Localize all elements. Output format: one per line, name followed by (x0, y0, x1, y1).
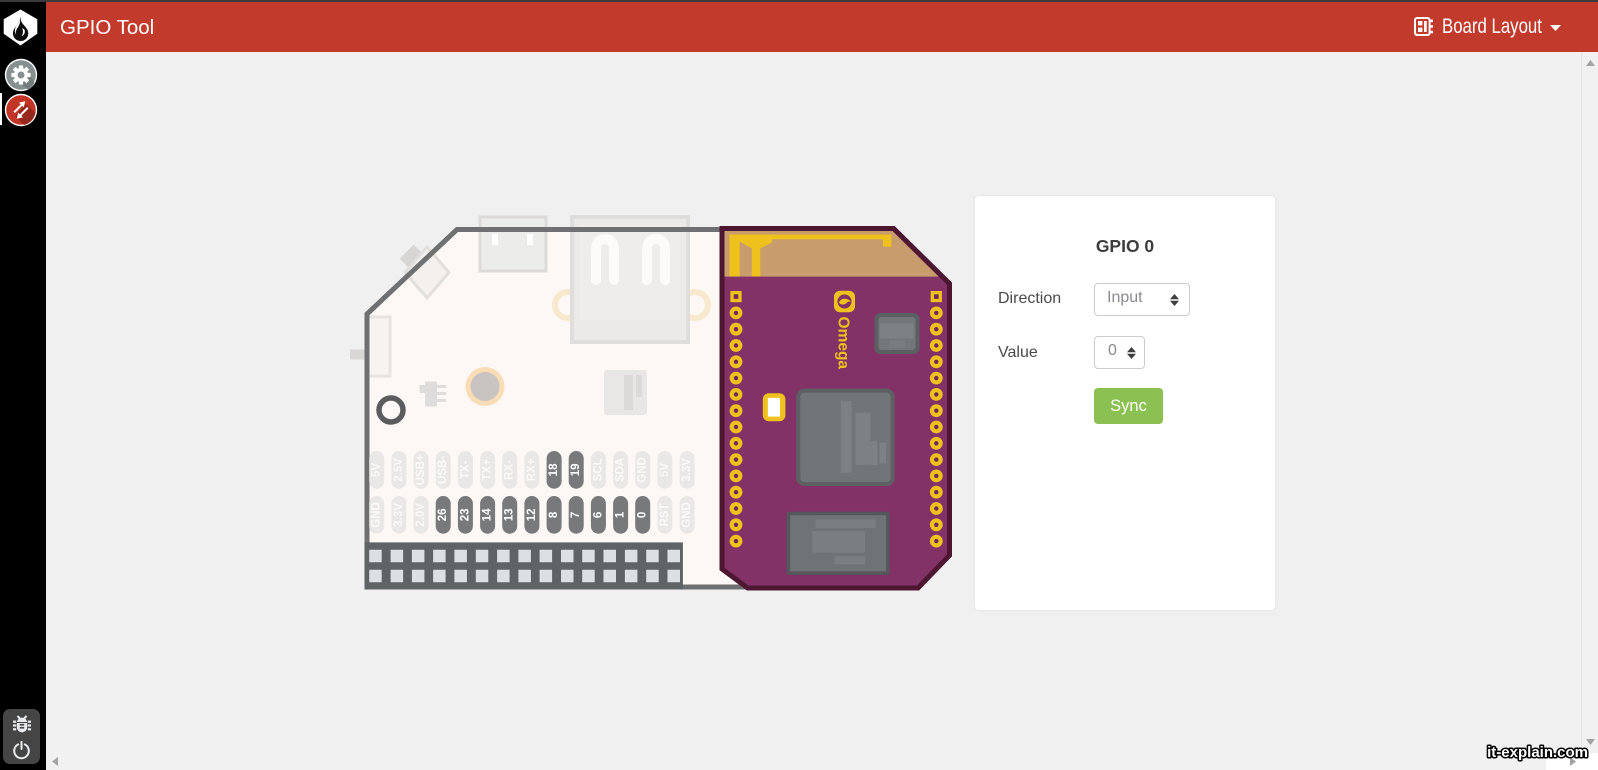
svg-text:5V: 5V (371, 463, 383, 477)
svg-text:3.3V: 3.3V (681, 458, 693, 482)
svg-text:3.3V: 3.3V (393, 503, 405, 527)
svg-text:12: 12 (526, 509, 538, 522)
svg-text:5V: 5V (659, 463, 671, 477)
svg-text:RST: RST (659, 503, 671, 526)
svg-text:19: 19 (570, 464, 582, 477)
svg-text:it-explain.com: it-explain.com (1487, 744, 1588, 761)
svg-text:TX+: TX+ (482, 459, 494, 481)
svg-text:6: 6 (592, 512, 604, 518)
svg-text:0: 0 (637, 512, 649, 518)
svg-text:GND: GND (371, 502, 383, 528)
svg-text:RX-: RX- (504, 460, 516, 480)
svg-text:RX+: RX+ (526, 458, 538, 481)
svg-text:2.0V: 2.0V (415, 503, 427, 527)
svg-text:2.5V: 2.5V (393, 458, 405, 482)
svg-text:26: 26 (437, 509, 449, 522)
svg-text:SCL: SCL (592, 458, 604, 481)
svg-text:1: 1 (615, 511, 627, 518)
svg-text:USB+: USB+ (415, 454, 427, 485)
svg-text:18: 18 (548, 463, 560, 476)
svg-text:14: 14 (482, 508, 494, 521)
svg-text:7: 7 (570, 512, 582, 518)
svg-text:GND: GND (681, 502, 693, 528)
svg-text:GND: GND (637, 457, 649, 483)
svg-text:USB-: USB- (437, 456, 449, 484)
svg-text:Omega: Omega (835, 317, 852, 370)
svg-text:13: 13 (504, 509, 516, 522)
svg-text:23: 23 (459, 509, 471, 522)
svg-text:TX-: TX- (459, 460, 471, 479)
svg-text:SDA: SDA (615, 458, 627, 482)
svg-text:8: 8 (548, 511, 560, 518)
